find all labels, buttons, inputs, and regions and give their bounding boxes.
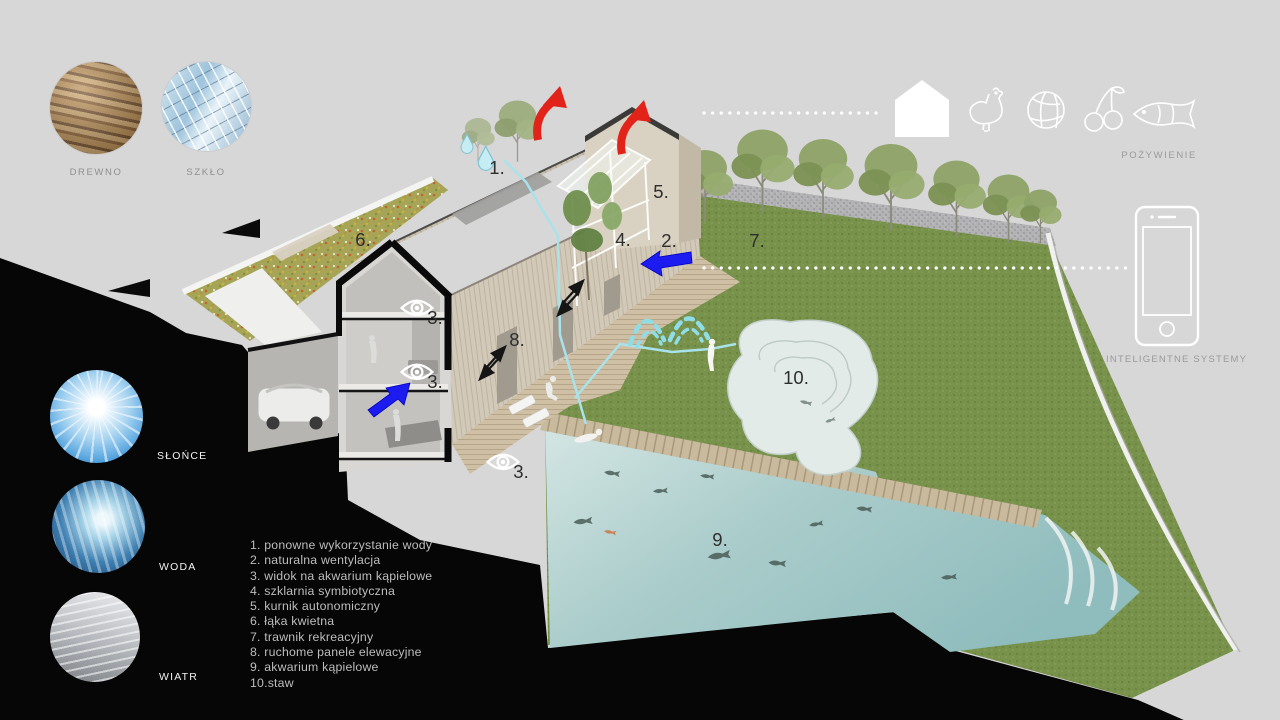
legend-item: 3. widok na akwarium kąpielowe [250,569,432,584]
legend-item: 8. ruchome panele elewacyjne [250,645,432,660]
plan-number-marker: 6. [355,229,370,251]
wind-photo [50,592,140,682]
legend-item: 7. trawnik rekreacyjny [250,630,432,645]
legend-item: 9. akwarium kąpielowe [250,660,432,675]
smart-systems-label: INTELIGENTNE SYSTEMY [1106,354,1247,365]
plan-number-marker: 1. [489,157,504,179]
plan-number-marker: 3. [427,371,442,393]
section-mark-triangle [108,279,150,297]
section-mark-triangle [222,219,260,238]
wind-label: WIATR [159,671,198,683]
plan-number-marker: 8. [509,329,524,351]
water-label: WODA [159,561,196,573]
chicken-icon [960,86,1012,134]
glass-label: SZKŁO [160,167,252,178]
house-cross-section [338,242,450,472]
water-photo [52,480,145,573]
glass-photo [162,62,251,151]
legend: 1. ponowne wykorzystanie wody2. naturaln… [250,538,432,691]
cherries-icon [1082,84,1126,134]
plan-number-marker: 5. [653,181,668,203]
wood-photo [50,62,142,154]
smartphone-icon [1130,202,1204,350]
plan-number-marker: 3. [513,461,528,483]
plan-number-marker: 7. [749,230,764,252]
wood-label: DREWNO [50,167,142,178]
legend-item: 1. ponowne wykorzystanie wody [250,538,432,553]
house-icon [895,78,949,138]
fish-icon [1132,98,1198,130]
legend-item: 6. łąka kwietna [250,614,432,629]
legend-item: 2. naturalna wentylacja [250,553,432,568]
cabbage-icon [1024,88,1070,132]
plan-number-marker: 9. [712,529,727,551]
food-icon-row [888,76,1200,138]
legend-item: 10.staw [250,676,432,691]
sun-label: SŁOŃCE [157,450,207,462]
plan-number-marker: 4. [615,229,630,251]
sun-photo [50,370,143,463]
plan-number-marker: 2. [661,230,676,252]
plan-number-marker: 10. [783,367,809,389]
legend-item: 4. szklarnia symbiotyczna [250,584,432,599]
legend-item: 5. kurnik autonomiczny [250,599,432,614]
plan-number-marker: 3. [427,307,442,329]
concept-board: DREWNO SZKŁO SŁOŃCE WODA WIATR 1. ponown… [0,0,1280,720]
food-label: POŻYWIENIE [1121,150,1197,161]
